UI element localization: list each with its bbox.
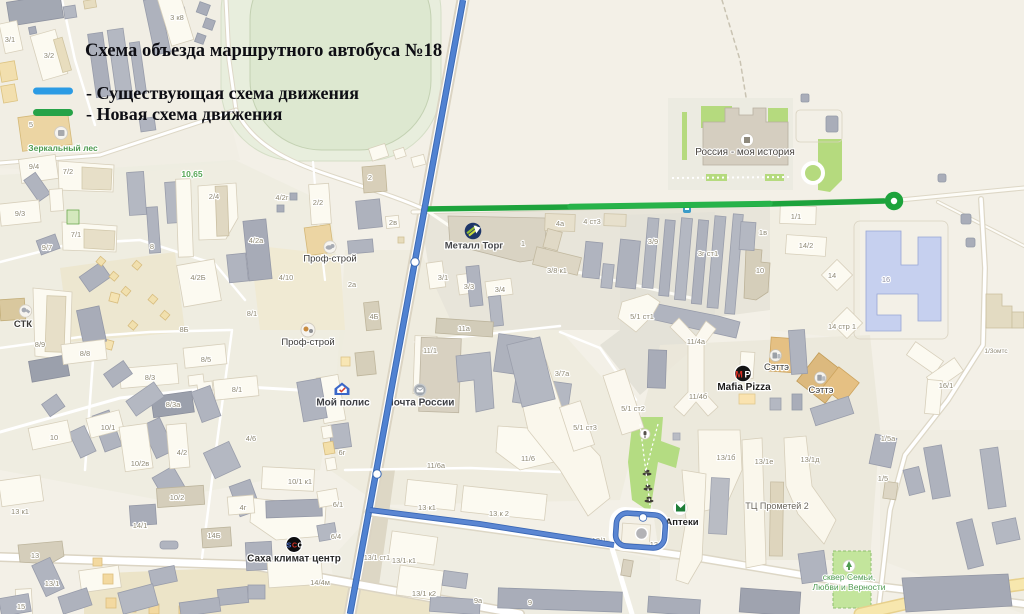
svg-text:10: 10 (50, 433, 58, 442)
svg-text:13 к1: 13 к1 (418, 503, 436, 512)
svg-text:8/3а: 8/3а (166, 400, 181, 409)
svg-text:8/5: 8/5 (201, 355, 211, 364)
svg-text:13/1б: 13/1б (717, 453, 736, 462)
svg-text:9: 9 (528, 598, 532, 607)
svg-text:- Новая схема движения: - Новая схема движения (86, 104, 283, 124)
svg-text:11а: 11а (458, 324, 471, 333)
svg-text:14Б: 14Б (207, 531, 220, 540)
svg-text:сквер Семьи,: сквер Семьи, (823, 572, 875, 582)
svg-text:13/1 к1: 13/1 к1 (392, 556, 416, 565)
svg-text:3/9: 3/9 (648, 237, 658, 246)
svg-text:13/1 ст1: 13/1 ст1 (364, 555, 390, 562)
svg-text:4/2: 4/2 (177, 448, 187, 457)
svg-text:11/4б: 11/4б (689, 392, 707, 401)
svg-text:8: 8 (150, 242, 154, 251)
svg-text:10/2в: 10/2в (131, 459, 150, 468)
svg-text:4/2г: 4/2г (275, 193, 288, 202)
svg-text:10/1 к1: 10/1 к1 (288, 477, 312, 486)
svg-text:Россия - моя история: Россия - моя история (695, 147, 795, 158)
svg-text:Зеркальный лес: Зеркальный лес (28, 143, 98, 153)
svg-text:4/10: 4/10 (279, 273, 294, 282)
svg-text:8Б: 8Б (179, 325, 188, 334)
svg-text:13/1: 13/1 (45, 579, 60, 588)
svg-text:14/4м: 14/4м (310, 578, 330, 587)
svg-text:ТЦ Прометей 2: ТЦ Прометей 2 (745, 501, 809, 511)
svg-text:14/2: 14/2 (799, 241, 814, 250)
svg-text:10/2: 10/2 (170, 493, 185, 502)
svg-text:4/2Б: 4/2Б (190, 273, 205, 282)
svg-text:16: 16 (882, 275, 890, 284)
svg-text:2: 2 (368, 173, 372, 182)
svg-text:- Существующая схема движения: - Существующая схема движения (86, 83, 359, 103)
svg-text:Любви и Верности: Любви и Верности (813, 582, 886, 592)
svg-text:10,65: 10,65 (181, 169, 203, 179)
svg-text:13: 13 (31, 551, 39, 560)
svg-text:4г: 4г (240, 503, 247, 512)
svg-text:3/1: 3/1 (5, 35, 15, 44)
svg-text:Сэттэ: Сэттэ (764, 362, 789, 373)
svg-text:1в: 1в (759, 228, 767, 237)
svg-text:4/6: 4/6 (246, 434, 256, 443)
svg-text:Схема объезда маршрутного авто: Схема объезда маршрутного автобуса №18 (85, 40, 442, 61)
svg-text:Саха климат центр: Саха климат центр (247, 554, 341, 565)
svg-text:14: 14 (828, 271, 836, 280)
svg-text:6/4: 6/4 (331, 532, 341, 541)
svg-text:Мой полис: Мой полис (316, 398, 370, 409)
svg-text:3г ст1: 3г ст1 (698, 249, 718, 258)
svg-text:Почта России: Почта России (387, 398, 455, 409)
svg-text:4/2а: 4/2а (249, 236, 264, 245)
svg-text:10/1: 10/1 (101, 423, 116, 432)
svg-text:11/6: 11/6 (521, 454, 535, 463)
svg-text:8/9: 8/9 (35, 340, 45, 349)
svg-text:Аптеки: Аптеки (665, 517, 698, 528)
svg-text:6г: 6г (339, 448, 346, 457)
svg-text:Металл Торг: Металл Торг (445, 241, 504, 252)
svg-text:9/3: 9/3 (15, 209, 25, 218)
svg-text:3/2: 3/2 (44, 51, 54, 60)
svg-text:11/4а: 11/4а (687, 337, 706, 346)
svg-text:M: M (735, 370, 743, 380)
svg-text:7/1: 7/1 (71, 230, 81, 239)
svg-text:9/4: 9/4 (29, 162, 39, 171)
svg-text:C: C (297, 543, 302, 550)
svg-text:2/2: 2/2 (313, 198, 323, 207)
svg-text:9/7: 9/7 (42, 243, 52, 252)
svg-text:2в: 2в (389, 218, 397, 227)
svg-text:5: 5 (29, 120, 33, 129)
svg-text:7/2: 7/2 (63, 167, 73, 176)
svg-text:1: 1 (521, 239, 525, 248)
svg-text:14/1: 14/1 (133, 521, 148, 530)
svg-text:8/8: 8/8 (80, 349, 90, 358)
svg-text:5/1 ст1: 5/1 ст1 (630, 312, 654, 321)
svg-text:1/5а: 1/5а (881, 434, 896, 443)
svg-text:6/1: 6/1 (333, 500, 343, 509)
svg-text:1/1: 1/1 (791, 212, 801, 221)
svg-text:Проф-строй: Проф-строй (281, 337, 334, 348)
svg-text:2/4: 2/4 (209, 192, 219, 201)
svg-text:Сэттэ: Сэттэ (808, 385, 833, 396)
svg-text:1/3омтс: 1/3омтс (984, 348, 1008, 355)
svg-text:13/1д: 13/1д (801, 455, 821, 464)
svg-text:13 к 2: 13 к 2 (489, 509, 509, 518)
svg-text:Проф-строй: Проф-строй (303, 254, 356, 265)
svg-text:13/1 к2: 13/1 к2 (412, 589, 436, 598)
svg-text:13 к1: 13 к1 (11, 507, 29, 516)
svg-text:13/1е: 13/1е (755, 457, 774, 466)
svg-text:2а: 2а (348, 280, 357, 289)
svg-text:15: 15 (17, 602, 25, 611)
svg-text:16/1: 16/1 (939, 381, 954, 390)
svg-text:3/1: 3/1 (438, 273, 448, 282)
svg-text:10: 10 (756, 266, 764, 275)
svg-text:3/7а: 3/7а (555, 369, 570, 378)
svg-text:8/3: 8/3 (145, 373, 155, 382)
svg-text:СТК: СТК (14, 319, 32, 330)
svg-text:11/1: 11/1 (423, 346, 437, 355)
svg-text:3/8 к1: 3/8 к1 (547, 266, 567, 275)
svg-text:3/3: 3/3 (464, 282, 474, 291)
svg-text:S: S (287, 543, 292, 550)
svg-text:5/1 ст3: 5/1 ст3 (573, 423, 597, 432)
svg-text:11/6а: 11/6а (427, 461, 446, 470)
svg-text:4Б: 4Б (369, 312, 378, 321)
svg-text:3 к8: 3 к8 (170, 13, 184, 22)
svg-text:P: P (744, 370, 750, 380)
svg-text:4 ст3: 4 ст3 (583, 217, 601, 226)
svg-text:14 стр 1: 14 стр 1 (828, 322, 856, 331)
svg-text:C: C (292, 543, 297, 550)
svg-text:3/4: 3/4 (495, 285, 505, 294)
svg-text:9а: 9а (474, 596, 483, 605)
svg-text:4а: 4а (556, 219, 565, 228)
svg-text:8/1: 8/1 (232, 385, 242, 394)
svg-text:1/5: 1/5 (878, 474, 888, 483)
svg-text:5/1 ст2: 5/1 ст2 (621, 404, 645, 413)
svg-text:8/1: 8/1 (247, 309, 257, 318)
svg-text:Mafia Pizza: Mafia Pizza (717, 382, 771, 393)
